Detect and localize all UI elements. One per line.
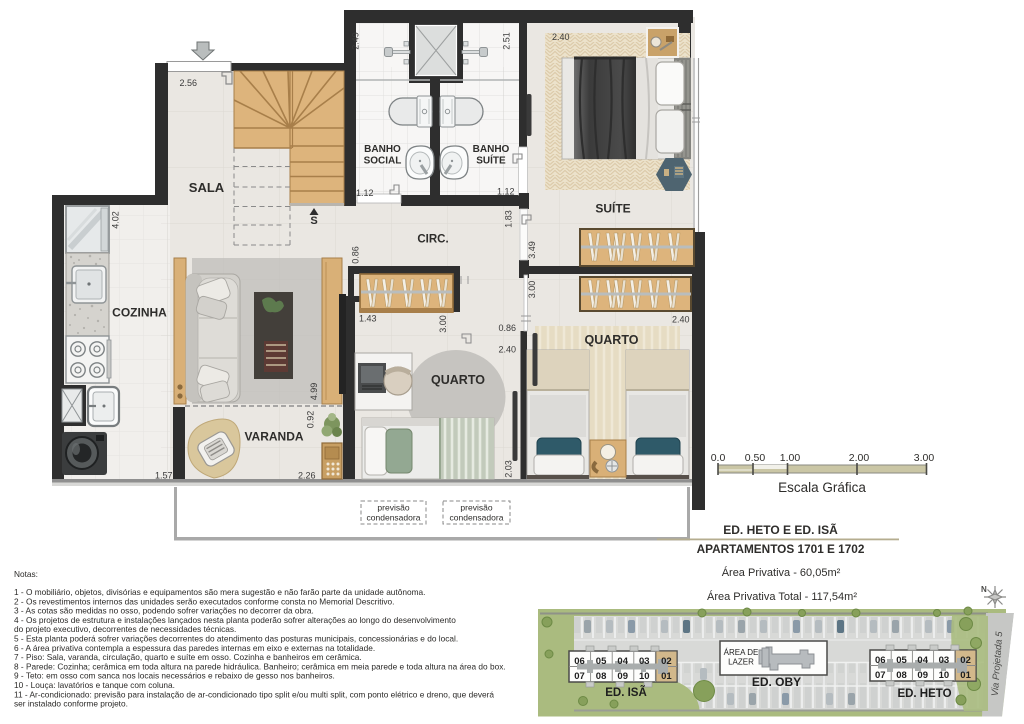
svg-text:2.40: 2.40 — [552, 32, 570, 42]
svg-text:CIRC.: CIRC. — [417, 234, 448, 246]
svg-text:previsão: previsão — [377, 503, 409, 513]
svg-text:10: 10 — [939, 670, 950, 681]
svg-text:Escala Gráfica: Escala Gráfica — [778, 480, 866, 495]
svg-text:ED. HETO: ED. HETO — [897, 688, 951, 700]
svg-text:03: 03 — [939, 655, 950, 666]
svg-text:previsão: previsão — [460, 503, 492, 513]
svg-text:3.00: 3.00 — [914, 452, 935, 464]
svg-text:2.49: 2.49 — [351, 32, 361, 50]
svg-text:Área Privativa Total - 117,54m: Área Privativa Total - 117,54m² — [707, 590, 857, 603]
svg-text:Notas:: Notas: — [14, 569, 38, 579]
svg-text:04: 04 — [617, 656, 628, 667]
svg-text:LAZER: LAZER — [728, 658, 754, 667]
svg-text:08: 08 — [596, 671, 607, 682]
svg-text:02: 02 — [661, 656, 672, 667]
svg-text:2.40: 2.40 — [499, 345, 517, 355]
svg-text:0.86: 0.86 — [499, 323, 517, 333]
svg-text:SOCIAL: SOCIAL — [364, 156, 402, 167]
svg-text:01: 01 — [661, 671, 672, 682]
svg-text:3.00: 3.00 — [438, 315, 448, 333]
svg-text:2.26: 2.26 — [298, 471, 316, 481]
svg-text:04: 04 — [917, 655, 928, 666]
svg-text:1.12: 1.12 — [356, 188, 374, 198]
svg-text:1.83: 1.83 — [504, 210, 514, 228]
svg-text:05: 05 — [896, 655, 907, 666]
svg-text:02: 02 — [960, 655, 971, 666]
svg-text:0.92: 0.92 — [306, 411, 316, 429]
svg-text:07: 07 — [875, 670, 886, 681]
svg-text:1.12: 1.12 — [497, 187, 515, 197]
svg-text:Área Privativa - 60,05m²: Área Privativa - 60,05m² — [722, 566, 841, 579]
svg-text:QUARTO: QUARTO — [585, 333, 639, 347]
svg-text:1.00: 1.00 — [780, 452, 801, 464]
svg-text:05: 05 — [596, 656, 607, 667]
svg-text:3.49: 3.49 — [527, 241, 537, 259]
svg-text:0.50: 0.50 — [745, 452, 766, 464]
svg-text:06: 06 — [875, 655, 886, 666]
svg-text:APARTAMENTOS 1701 E 1702: APARTAMENTOS 1701 E 1702 — [697, 542, 865, 556]
svg-text:N: N — [981, 585, 987, 594]
svg-text:09: 09 — [917, 670, 928, 681]
svg-text:BANHO: BANHO — [473, 144, 510, 155]
svg-text:0.0: 0.0 — [711, 452, 726, 464]
svg-text:condensadora: condensadora — [367, 513, 421, 523]
svg-text:2.56: 2.56 — [180, 78, 198, 88]
svg-text:2.03: 2.03 — [504, 460, 514, 478]
svg-text:SUÍTE: SUÍTE — [476, 154, 506, 167]
svg-text:ser instalado conforme projeto: ser instalado conforme projeto. — [14, 699, 128, 709]
svg-text:ÁREA DE: ÁREA DE — [724, 648, 759, 657]
svg-text:condensadora: condensadora — [450, 513, 504, 523]
svg-text:QUARTO: QUARTO — [431, 373, 485, 387]
svg-text:06: 06 — [574, 656, 585, 667]
svg-text:SUÍTE: SUÍTE — [595, 201, 630, 216]
svg-text:S: S — [310, 215, 317, 227]
svg-text:2.00: 2.00 — [849, 452, 870, 464]
svg-text:01: 01 — [960, 670, 971, 681]
svg-text:0.86: 0.86 — [351, 246, 361, 264]
svg-text:SALA: SALA — [189, 180, 225, 195]
svg-text:07: 07 — [574, 671, 585, 682]
svg-text:VARANDA: VARANDA — [244, 430, 303, 444]
svg-text:COZINHA: COZINHA — [112, 306, 167, 320]
svg-text:4.99: 4.99 — [309, 383, 319, 401]
svg-text:10: 10 — [639, 671, 650, 682]
svg-text:1.43: 1.43 — [359, 314, 377, 324]
svg-text:ED. HETO E ED. ISÃ: ED. HETO E ED. ISÃ — [723, 522, 838, 537]
svg-text:4.02: 4.02 — [111, 211, 121, 229]
svg-text:09: 09 — [617, 671, 628, 682]
svg-text:ED. OBY: ED. OBY — [752, 675, 801, 689]
svg-text:03: 03 — [639, 656, 650, 667]
svg-text:08: 08 — [896, 670, 907, 681]
svg-text:ED. ISÃ: ED. ISÃ — [605, 686, 647, 699]
svg-text:3.00: 3.00 — [527, 281, 537, 299]
svg-text:2.40: 2.40 — [672, 315, 690, 325]
svg-text:BANHO: BANHO — [364, 144, 401, 155]
svg-text:2.51: 2.51 — [502, 32, 512, 50]
svg-text:1.57: 1.57 — [155, 471, 173, 481]
